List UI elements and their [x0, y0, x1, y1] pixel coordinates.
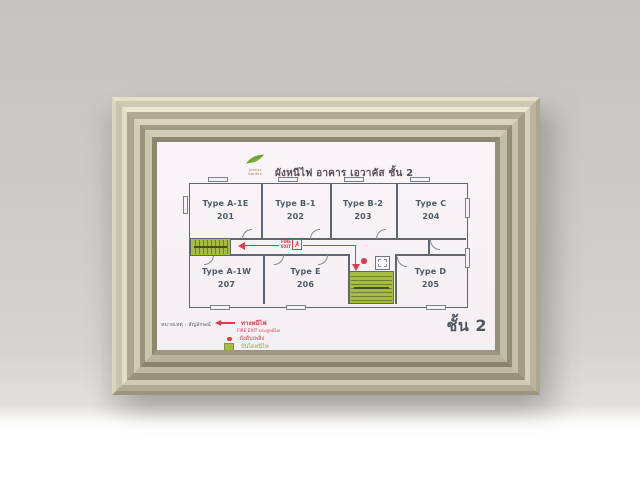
frame-molding-ring: Arecas Garden ผังหนีไฟ อาคาร เอวาคัส ชั้… — [140, 125, 512, 367]
room-207: Type A-1W 207 — [190, 254, 263, 304]
room-number: 201 — [217, 211, 234, 224]
running-man-icon — [292, 239, 302, 250]
room-number: 205 — [422, 279, 439, 292]
room-number: 202 — [287, 211, 304, 224]
arecas-garden-logo: Arecas Garden — [241, 152, 269, 176]
room-number: 206 — [297, 279, 314, 292]
frame-molding-ring: Arecas Garden ผังหนีไฟ อาคาร เอวาคัส ชั้… — [145, 130, 507, 362]
building-outline: Type A-1E 201 Type B-1 202 Type B-2 203 … — [189, 183, 468, 308]
room-204: Type C 204 — [396, 184, 466, 238]
leaf-logo-icon — [244, 153, 266, 165]
room-type: Type B-2 — [343, 198, 383, 211]
escape-route-line — [245, 245, 279, 247]
stair-rail — [194, 246, 227, 248]
fire-exit-sign: FIRE EXIT — [281, 239, 302, 250]
balcony-notch — [210, 305, 230, 310]
frame-molding-ring: Arecas Garden ผังหนีไฟ อาคาร เอวาคัส ชั้… — [122, 107, 530, 385]
legend-sublabel: FIRE EXIT ประตูหนีไฟ — [237, 327, 280, 334]
room-type: Type B-1 — [275, 198, 315, 211]
room-number: 207 — [218, 279, 235, 292]
balcony-notch — [208, 177, 228, 182]
fire-exit-line2: EXIT — [281, 245, 291, 249]
fire-stair-central — [349, 271, 394, 304]
legend-item-fire-stair: บันไดหนีไฟ — [224, 343, 269, 350]
red-dot-icon — [227, 337, 232, 342]
frame-molding-ring: Arecas Garden ผังหนีไฟ อาคาร เอวาคัส ชั้… — [112, 97, 540, 395]
floor-badge: ชั้น 2 — [447, 314, 488, 339]
frame-molding-ring: Arecas Garden ผังหนีไฟ อาคาร เอวาคัส ชั้… — [152, 137, 500, 355]
picture-frame: Arecas Garden ผังหนีไฟ อาคาร เอวาคัส ชั้… — [112, 97, 540, 395]
frame-molding-ring: Arecas Garden ผังหนีไฟ อาคาร เอวาคัส ชั้… — [116, 101, 536, 391]
red-arrow-icon — [221, 322, 235, 323]
balcony-notch — [426, 305, 446, 310]
room-number: 204 — [422, 211, 439, 224]
logo-text: Arecas Garden — [241, 169, 269, 176]
legend-label: ถังดับเพลิง — [240, 335, 265, 343]
room-205: Type D 205 — [395, 254, 466, 304]
balcony-notch — [286, 305, 306, 310]
balcony-notch — [183, 196, 188, 214]
escape-arrow-left — [238, 242, 245, 250]
room-type: Type A-1E — [202, 198, 248, 211]
room-number: 203 — [354, 211, 371, 224]
room-type: Type A-1W — [202, 266, 251, 279]
legend-label: บันไดหนีไฟ — [241, 343, 269, 350]
elevator-inner-dashed — [378, 259, 387, 267]
stair-rail — [354, 287, 389, 289]
escape-route-line — [355, 245, 357, 265]
room-203: Type B-2 203 — [330, 184, 396, 238]
balcony-notch — [278, 177, 298, 182]
balcony-notch — [344, 177, 364, 182]
corridor-top-wall — [190, 238, 466, 240]
room-type: Type D — [415, 266, 447, 279]
door-swing-icon — [430, 240, 440, 250]
balcony-notch — [410, 177, 430, 182]
legend-note: หมายเหตุ : สัญลักษณ์ — [161, 321, 211, 329]
fire-stair-west — [190, 238, 231, 256]
room-201: Type A-1E 201 — [190, 184, 261, 238]
escape-route-line — [303, 245, 356, 247]
room-type: Type C — [416, 198, 447, 211]
room-type: Type E — [290, 266, 320, 279]
fire-extinguisher-dot — [361, 258, 367, 264]
frame-molding-ring: Arecas Garden ผังหนีไฟ อาคาร เอวาคัส ชั้… — [127, 112, 525, 380]
elevator — [375, 256, 390, 270]
evacuation-plan-print: Arecas Garden ผังหนีไฟ อาคาร เอวาคัส ชั้… — [157, 142, 495, 350]
frame-molding-ring: Arecas Garden ผังหนีไฟ อาคาร เอวาคัส ชั้… — [134, 119, 518, 373]
room-206: Type E 206 — [263, 254, 348, 304]
room-202: Type B-1 202 — [261, 184, 330, 238]
green-square-icon — [224, 343, 234, 350]
escape-arrow-down — [352, 264, 360, 271]
legend-item-extinguisher: ถังดับเพลิง — [227, 335, 264, 343]
